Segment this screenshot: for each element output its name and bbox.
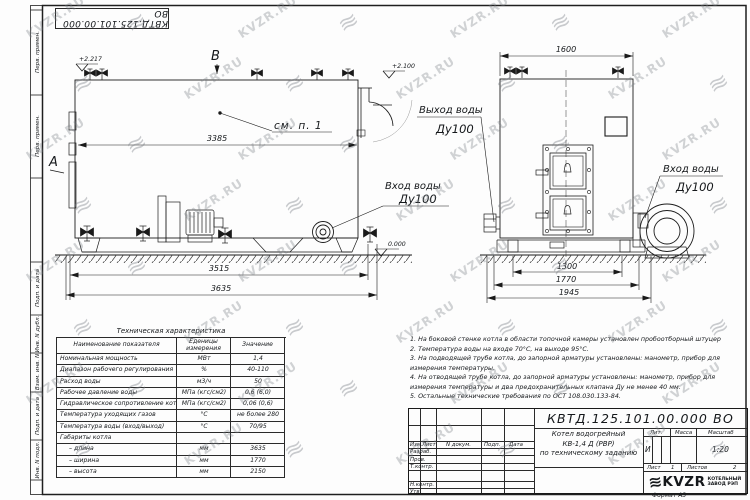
outlet-water-dn: Ду100: [435, 122, 474, 136]
drawing-sheet: Перв. примен. Перв. примен. Подп. и дата…: [0, 0, 750, 500]
side-view-valves: [81, 69, 377, 243]
spec-header-units: Еденицы измерения: [177, 338, 231, 354]
technical-note: 3. На подводящей трубе котла, до запорно…: [410, 354, 746, 373]
spec-table-row: – длинамм3635: [57, 444, 286, 455]
svg-text:Перв. примен.: Перв. примен.: [35, 115, 41, 157]
elevation-mark: 0.000: [388, 241, 406, 248]
spec-table-cell: – высота: [57, 467, 177, 478]
spec-table-title: Техническая характеристика: [56, 327, 286, 335]
spec-table-cell: МПа (кгс/см2): [177, 399, 231, 410]
spec-table-cell: – длина: [57, 444, 177, 455]
spec-table-cell: МВт: [177, 354, 231, 365]
spec-table-cell: 1770: [231, 456, 285, 467]
spec-table-row: Расход водым3/ч50: [57, 377, 286, 388]
sheet-value: 1: [671, 465, 674, 471]
spec-table-row: Рабочее давление водыМПа (кгс/см2)0,6 (6…: [57, 388, 286, 399]
inlet-water-label: Вход воды: [385, 181, 441, 192]
spec-table-cell: 0,6 (6,0): [231, 388, 285, 399]
col-data: Дата: [509, 442, 523, 448]
scale-header: Масштаб: [708, 430, 734, 436]
spec-table-cell: Номинальная мощность: [57, 354, 177, 365]
view-marker-b: B: [211, 49, 220, 64]
inlet-water-label: Вход воды: [663, 164, 719, 175]
sheets-value: 2: [733, 465, 736, 471]
spec-table-cell: Гидравлическое сопротивление котла: [57, 399, 177, 410]
spec-table-cell: [231, 433, 285, 444]
spec-table-cell: 1,4: [231, 354, 285, 365]
sheets-label: Листов: [687, 465, 707, 471]
front-view-doors: [536, 145, 593, 235]
spec-table-row: Температура уходящих газов°Сне более 280: [57, 410, 286, 421]
spec-table-row: Гидравлическое сопротивление котлаМПа (к…: [57, 399, 286, 410]
spec-table-cell: 2150: [231, 467, 285, 478]
row-tkontr: Т.контр.: [410, 464, 433, 470]
spec-header-value: Значение: [231, 338, 285, 354]
technical-notes: 1. На боковой стенке котла в области топ…: [410, 335, 746, 402]
lit-value: И: [645, 445, 651, 454]
technical-note: 4. На отводящей трубе котла, до запорной…: [410, 373, 746, 392]
spec-table-row: Габариты котла: [57, 433, 286, 444]
drawing-title: Котел водогрейный КВ-1,4 Д (РВР) по техн…: [534, 430, 643, 459]
spec-table-row: Температура воды (вход/выход)°С70/95: [57, 422, 286, 433]
elevation-mark: +2.100: [392, 63, 415, 70]
col-list: Лист: [422, 442, 436, 448]
dim-3385: 3385: [207, 134, 227, 143]
top-stamp: КВТД.125.101.00.000 ВО: [55, 8, 169, 29]
spec-table-cell: не более 280: [231, 410, 285, 421]
dim-3515: 3515: [209, 264, 229, 273]
dim-3635: 3635: [211, 284, 231, 293]
spec-table-cell: МПа (кгс/см2): [177, 388, 231, 399]
row-nkontr: Н.контр.: [410, 482, 434, 488]
doc-number: КВТД.125.101.00.000 ВО: [534, 409, 747, 428]
spec-table-row: Номинальная мощностьМВт1,4: [57, 354, 286, 365]
inspection-hatch: [605, 117, 627, 136]
svg-text:Подп. и дата: Подп. и дата: [35, 268, 41, 307]
company-cell: ≋ KVZR КОТЕЛЬНЫЙ ЗАВОД РЭП: [643, 471, 747, 493]
spec-table-cell: Температура воды (вход/выход): [57, 422, 177, 433]
spec-header-name: Наименование показателя: [57, 338, 177, 354]
title-block: КВТД.125.101.00.000 ВО Изм. Лист N докум…: [408, 408, 748, 494]
inlet-flange: [313, 222, 334, 243]
row-prov: Пров.: [410, 457, 426, 463]
technical-note: 5. Остальные технические требования по О…: [410, 392, 746, 402]
blower-fan: [633, 204, 694, 258]
inlet-water-dn: Ду100: [675, 180, 714, 194]
front-view-base: [497, 240, 645, 252]
format-label: Формат А3: [652, 492, 750, 499]
spec-table-cell: %: [177, 365, 231, 376]
dim-1770: 1770: [556, 275, 576, 284]
spec-table: Техническая характеристика Наименование …: [56, 327, 286, 478]
spec-table-row: – ширинамм1770: [57, 456, 286, 467]
spec-table-cell: 40-110: [231, 365, 285, 376]
mass-header: Масса: [675, 430, 692, 436]
dim-1600: 1600: [556, 45, 576, 54]
technical-note: 1. На боковой стенке котла в области топ…: [410, 335, 746, 345]
spec-table-cell: – ширина: [57, 456, 177, 467]
spec-table-cell: мм: [177, 444, 231, 455]
spec-table-cell: 0,06 (0,6): [231, 399, 285, 410]
spec-table-cell: °С: [177, 422, 231, 433]
spec-table-cell: мм: [177, 456, 231, 467]
spec-table-cell: Диапазон рабочего регулирования: [57, 365, 177, 376]
spec-table-row: – высотамм2150: [57, 467, 286, 478]
row-razrab: Разраб.: [410, 449, 431, 455]
spec-table-cell: мм: [177, 467, 231, 478]
outlet-flange: [484, 214, 500, 232]
svg-text:Инв. N подл.: Инв. N подл.: [35, 441, 41, 478]
outlet-pipe: [357, 88, 412, 142]
technical-note: 2. Температура воды на входе 70°С, на вы…: [410, 345, 746, 355]
side-view: [55, 80, 412, 263]
col-ndoc: N докум.: [446, 442, 471, 448]
callout-see-note: см. п. 1: [274, 120, 323, 132]
spec-table-cell: Рабочее давление воды: [57, 388, 177, 399]
dim-1945: 1945: [559, 288, 579, 297]
spec-table-cell: 50: [231, 377, 285, 388]
svg-text:Подп. и дата: Подп. и дата: [35, 396, 41, 435]
burner-assembly: [158, 196, 223, 242]
col-podp: Подп.: [484, 442, 500, 448]
spec-table-cell: 70/95: [231, 422, 285, 433]
spec-table-row: Диапазон рабочего регулирования%40-110: [57, 365, 286, 376]
frame-strip-labels: Перв. примен. Перв. примен. Подп. и дата…: [35, 31, 41, 479]
door-bolts: [545, 147, 590, 232]
spec-table-cell: Расход воды: [57, 377, 177, 388]
dim-1300: 1300: [557, 262, 577, 271]
spec-table-cell: 3635: [231, 444, 285, 455]
col-izm: Изм.: [410, 442, 423, 448]
spec-table-cell: [177, 433, 231, 444]
elevation-mark: +2.217: [79, 56, 102, 63]
svg-text:Взам. инв. N: Взам. инв. N: [35, 353, 41, 390]
front-view-valves: [505, 67, 624, 78]
outlet-water-label: Выход воды: [419, 105, 483, 116]
row-utv: Утв.: [410, 489, 421, 495]
spec-table-header: Наименование показателя Еденицы измерени…: [57, 338, 286, 354]
company-subtitle: КОТЕЛЬНЫЙ ЗАВОД РЭП: [707, 477, 741, 488]
sheet-label: Лист: [647, 465, 661, 471]
section-marker-a: A: [48, 155, 58, 170]
lit-header: Лит.: [650, 430, 662, 436]
company-name: KVZR: [662, 474, 705, 490]
spec-table-cell: м3/ч: [177, 377, 231, 388]
kvzr-logo-icon: ≋: [647, 472, 662, 492]
inlet-water-dn: Ду100: [398, 192, 437, 206]
svg-text:Инв. N дубл.: Инв. N дубл.: [35, 315, 41, 352]
spec-table-cell: Габариты котла: [57, 433, 177, 444]
scale-value: 1:20: [712, 445, 729, 454]
spec-table-cell: Температура уходящих газов: [57, 410, 177, 421]
spec-table-cell: °С: [177, 410, 231, 421]
svg-text:Перв. примен.: Перв. примен.: [35, 31, 41, 73]
